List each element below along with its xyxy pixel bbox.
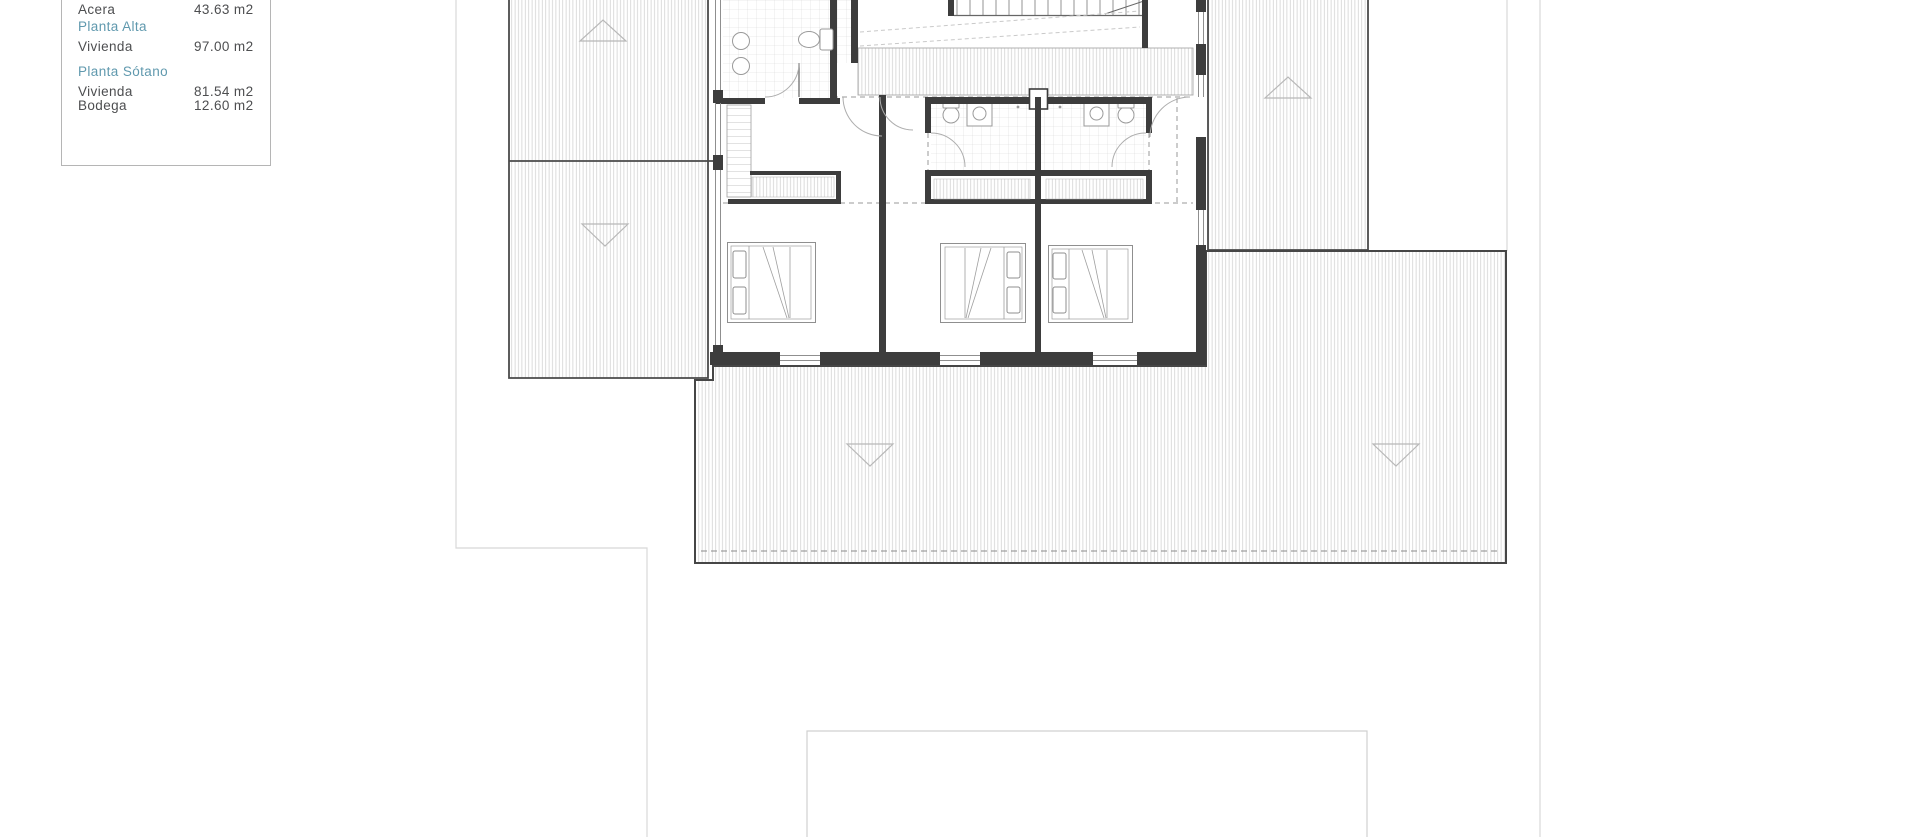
sink-icon (733, 58, 750, 75)
deck-band (858, 48, 1193, 95)
toilet-icon (820, 29, 833, 50)
floor-plan-page: Acera 43.63 m2 Planta Alta Vivienda 97.0… (0, 0, 1920, 837)
floor-plan-canvas (0, 0, 1920, 837)
bathroom-main (716, 0, 858, 104)
area-value: 97.00 m2 (194, 39, 254, 54)
toilet-icon (943, 107, 959, 123)
area-label: Acera (78, 2, 115, 17)
area-value: 81.54 m2 (194, 84, 254, 99)
toilet-icon (1118, 107, 1134, 123)
area-label: Bodega (78, 98, 127, 113)
bathroom-ensuite-right (1041, 97, 1146, 170)
bathroom-ensuite-left (931, 97, 1035, 170)
legend-row: Bodega 12.60 m2 (78, 98, 262, 114)
pillow (733, 251, 746, 278)
sink-icon (733, 33, 750, 50)
area-value: 12.60 m2 (194, 98, 254, 113)
toilet-icon (799, 32, 820, 48)
roof-terrace-left (509, 0, 716, 378)
pool-outline (807, 731, 1367, 837)
legend-row: Vivienda 97.00 m2 (78, 39, 262, 55)
pillow (733, 287, 746, 314)
roof-terrace-right (1208, 0, 1368, 250)
area-label: Vivienda (78, 84, 133, 99)
pillow (1007, 252, 1020, 278)
section-label: Planta Alta (78, 19, 147, 34)
closet-shelves (727, 105, 751, 197)
house-wall-west (713, 0, 723, 365)
bed (728, 243, 1133, 323)
house-wall-east (1196, 0, 1206, 365)
pillow (1053, 253, 1066, 279)
legend-section-planta-alta: Planta Alta (78, 19, 262, 35)
sink-icon (1084, 101, 1109, 126)
pillow (1053, 287, 1066, 313)
sink-icon (967, 101, 992, 126)
section-label: Planta Sótano (78, 64, 168, 79)
house-wall-south (710, 352, 1206, 365)
area-value: 43.63 m2 (194, 2, 254, 17)
staircase (860, 0, 1148, 48)
area-legend: Acera 43.63 m2 Planta Alta Vivienda 97.0… (61, 0, 271, 166)
area-label: Vivienda (78, 39, 133, 54)
legend-row: Acera 43.63 m2 (78, 2, 262, 18)
pillow (1007, 287, 1020, 313)
legend-section-planta-sotano: Planta Sótano (78, 64, 262, 80)
